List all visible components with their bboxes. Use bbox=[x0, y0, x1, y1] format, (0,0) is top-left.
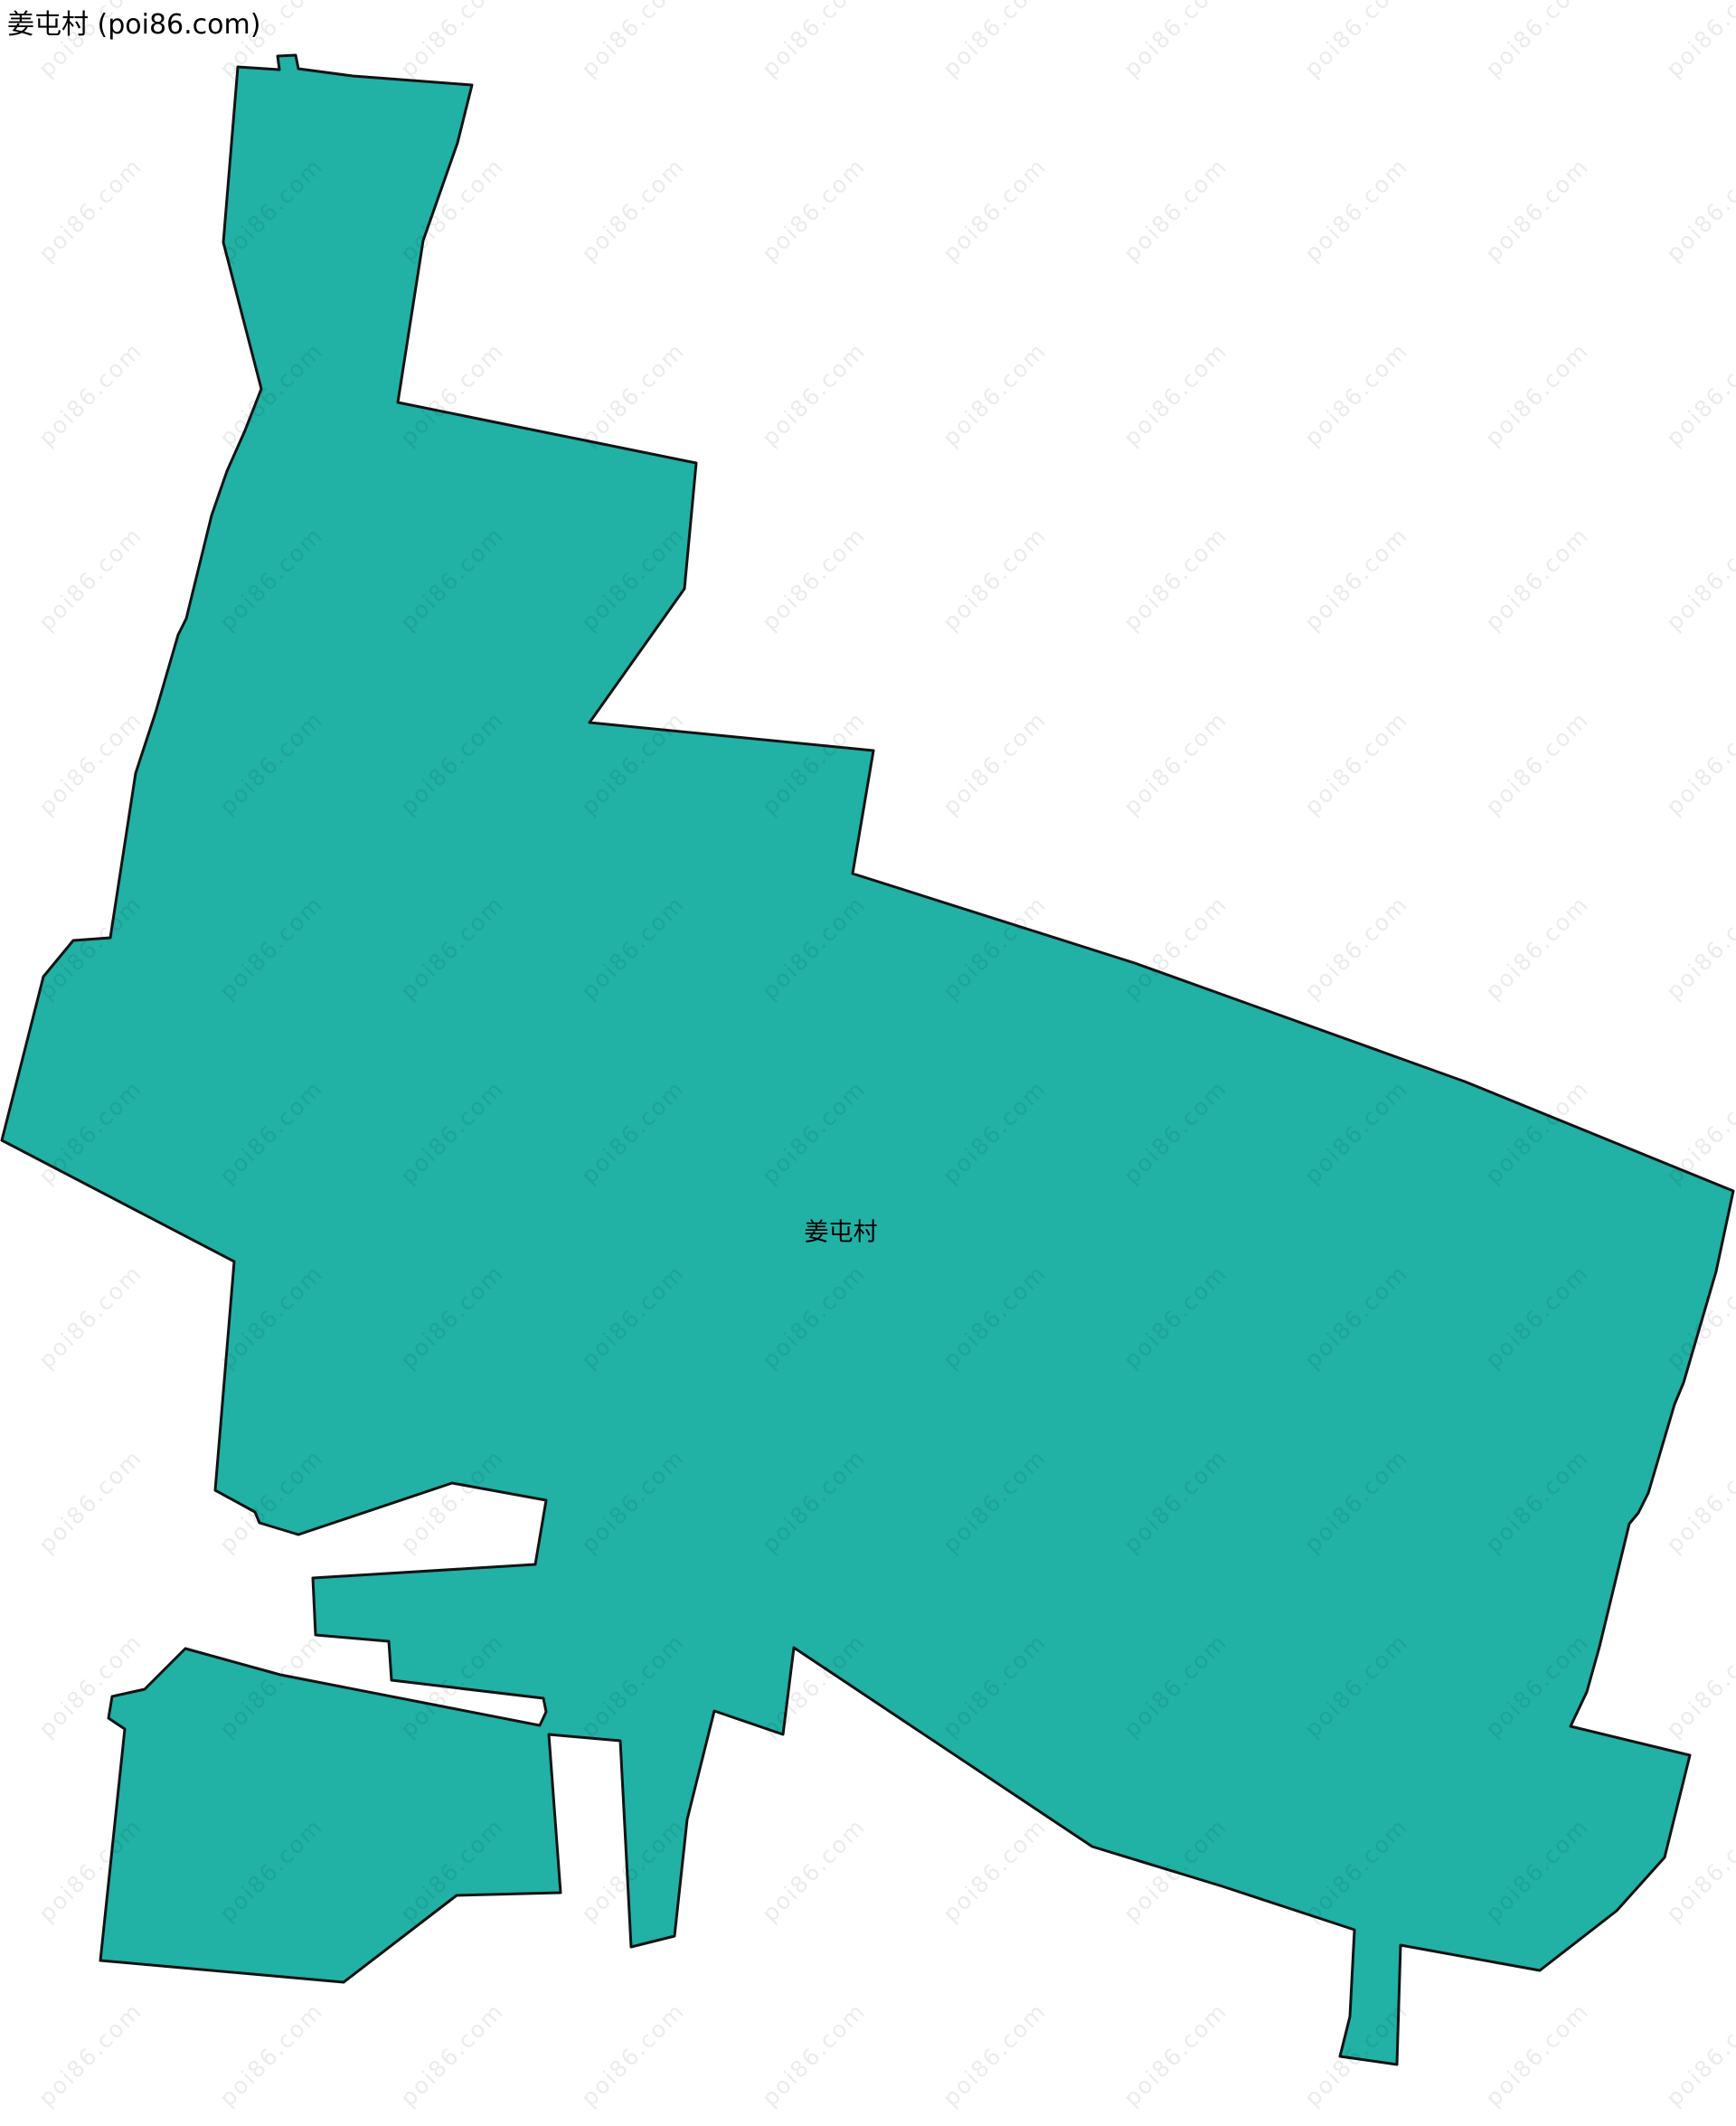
page-title: 姜屯村 (poi86.com) bbox=[7, 9, 260, 42]
village-boundary-map bbox=[0, 0, 1736, 2126]
village-region-polygon[interactable] bbox=[2, 55, 1733, 2065]
region-label: 姜屯村 bbox=[805, 1213, 878, 1248]
map-canvas: poi86.compoi86.compoi86.compoi86.compoi8… bbox=[0, 0, 1736, 2126]
